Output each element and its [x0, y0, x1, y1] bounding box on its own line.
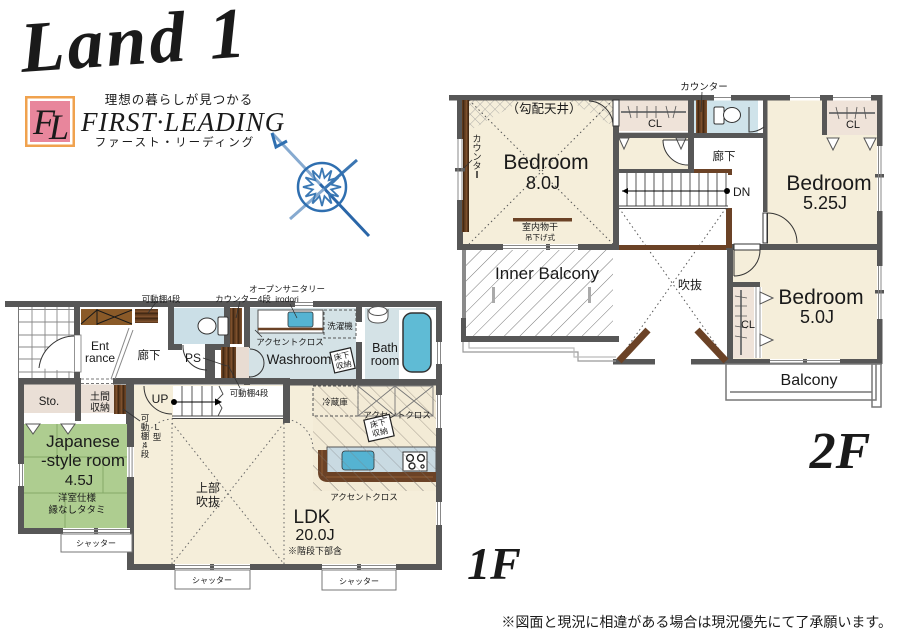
- svg-text:可動棚4段: 可動棚4段: [142, 294, 181, 304]
- svg-text:Bedroom: Bedroom: [778, 286, 863, 309]
- svg-text:シャッター: シャッター: [192, 576, 232, 585]
- svg-text:4.5J: 4.5J: [65, 472, 93, 489]
- svg-text:室内物干: 室内物干: [522, 221, 558, 232]
- svg-text:Washroom: Washroom: [267, 352, 332, 367]
- svg-text:Bedroom: Bedroom: [786, 172, 871, 195]
- svg-text:カウンター: カウンター: [680, 82, 728, 93]
- svg-text:Japanese: Japanese: [46, 432, 120, 451]
- svg-text:冷蔵庫: 冷蔵庫: [322, 397, 348, 407]
- svg-text:CL: CL: [648, 118, 662, 130]
- svg-text:洋室仕様: 洋室仕様: [58, 492, 97, 504]
- svg-text:（勾配天井）: （勾配天井）: [506, 102, 581, 116]
- svg-text:LDK: LDK: [294, 507, 331, 528]
- svg-text:5.0J: 5.0J: [800, 307, 834, 327]
- svg-text:上部: 上部: [196, 480, 220, 495]
- svg-text:ファースト・リーディング: ファースト・リーディング: [95, 135, 256, 149]
- svg-text:収納: 収納: [90, 401, 110, 414]
- svg-text:アクセントクロス: アクセントクロス: [256, 337, 324, 347]
- svg-text:理想の暮らしが見つかる: 理想の暮らしが見つかる: [105, 92, 254, 107]
- svg-text:洗濯機: 洗濯機: [327, 321, 353, 331]
- svg-text:アクセントクロス: アクセントクロス: [330, 492, 398, 502]
- svg-text:※図面と現況に相違がある場合は現況優先にて了承願います。: ※図面と現況に相違がある場合は現況優先にて了承願います。: [501, 614, 892, 630]
- svg-text:room: room: [371, 354, 399, 368]
- svg-text:irodori: irodori: [275, 294, 299, 304]
- svg-text:-style room: -style room: [41, 451, 125, 470]
- svg-text:Bath: Bath: [372, 341, 398, 355]
- svg-text:可動棚4段: 可動棚4段: [230, 388, 269, 398]
- svg-text:Sto.: Sto.: [39, 396, 59, 408]
- svg-text:縁なしタタミ: 縁なしタタミ: [48, 504, 105, 516]
- svg-text:段: 段: [141, 449, 150, 459]
- svg-text:PS: PS: [185, 351, 201, 365]
- svg-text:UP: UP: [152, 392, 169, 406]
- svg-text:カウンター4段: カウンター4段: [215, 294, 271, 304]
- svg-text:L: L: [48, 107, 69, 147]
- svg-text:吹抜: 吹抜: [678, 278, 702, 292]
- svg-text:シャッター: シャッター: [339, 577, 379, 586]
- svg-text:CL: CL: [846, 119, 860, 131]
- svg-text:廊下: 廊下: [713, 149, 736, 163]
- svg-text:1F: 1F: [467, 538, 521, 589]
- svg-text:タ: タ: [472, 161, 481, 171]
- svg-text:吹抜: 吹抜: [196, 495, 220, 509]
- svg-text:廊下: 廊下: [138, 348, 161, 362]
- svg-text:CL: CL: [741, 319, 755, 331]
- svg-text:DN: DN: [733, 185, 750, 199]
- svg-text:Bedroom: Bedroom: [503, 151, 588, 174]
- svg-text:8.0J: 8.0J: [526, 173, 560, 193]
- svg-text:rance: rance: [85, 351, 115, 365]
- svg-text:Balcony: Balcony: [781, 372, 838, 389]
- svg-text:20.0J: 20.0J: [295, 527, 334, 544]
- svg-text:オープンサニタリー: オープンサニタリー: [249, 284, 325, 294]
- svg-text:Inner Balcony: Inner Balcony: [495, 264, 599, 283]
- svg-text:2F: 2F: [809, 423, 871, 480]
- svg-text:型: 型: [153, 432, 162, 442]
- svg-text:吊下げ式: 吊下げ式: [525, 232, 555, 242]
- svg-text:L: L: [155, 422, 160, 432]
- svg-text:5.25J: 5.25J: [803, 193, 847, 213]
- svg-text:土間: 土間: [90, 390, 110, 403]
- svg-text:シャッター: シャッター: [76, 539, 116, 548]
- svg-text:※階段下部含: ※階段下部含: [288, 545, 342, 556]
- svg-text:アクセントクロス: アクセントクロス: [363, 410, 431, 420]
- svg-text:FIRST·LEADING: FIRST·LEADING: [80, 107, 285, 137]
